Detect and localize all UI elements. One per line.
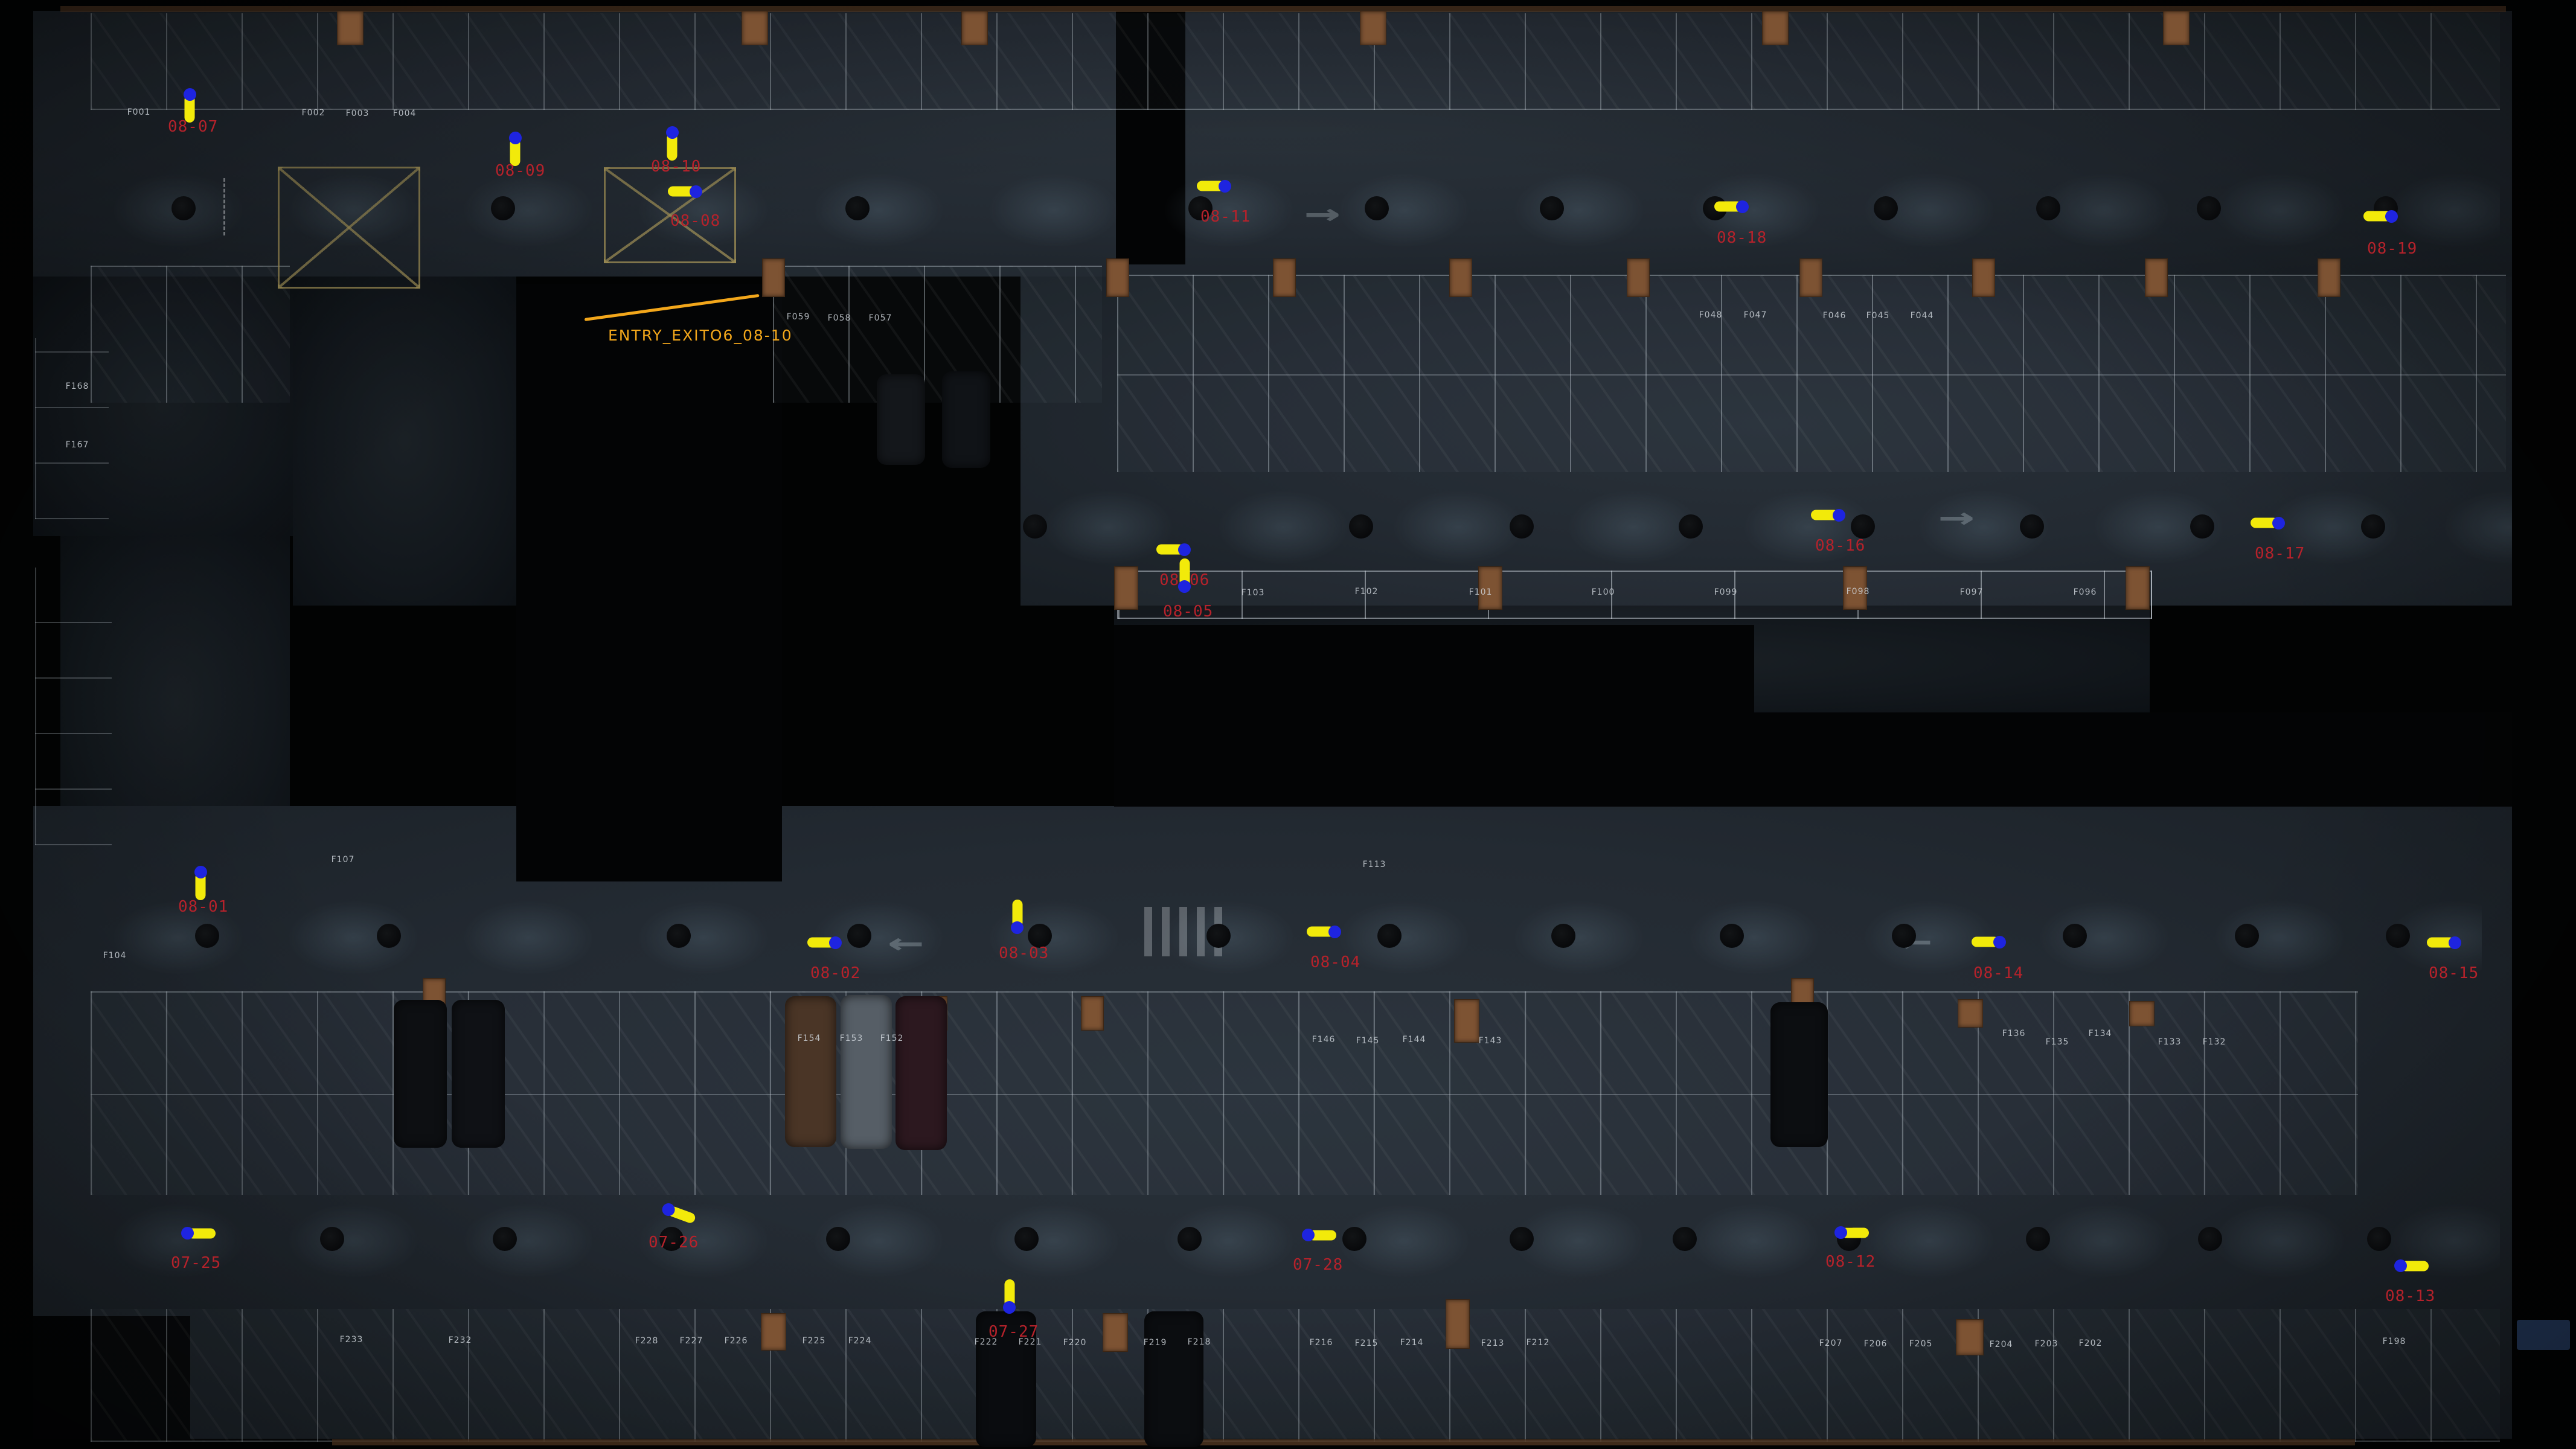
lane-bottom xyxy=(91,1188,2500,1290)
structural-column xyxy=(1510,514,1534,539)
scan-marker-heading-dot xyxy=(1993,936,2006,948)
stall-label-F134: F134 xyxy=(2089,1029,2112,1038)
parked-car xyxy=(877,374,925,465)
concrete-pillar xyxy=(1446,1299,1470,1349)
stall-label-F154: F154 xyxy=(798,1034,821,1043)
structural-column xyxy=(320,1227,344,1251)
floor-center-left xyxy=(293,277,516,606)
stall-label-F044: F044 xyxy=(1911,311,1934,321)
stall-label-F207: F207 xyxy=(1819,1339,1843,1348)
structural-column xyxy=(2235,924,2259,948)
structural-column xyxy=(667,924,691,948)
stall-label-F228: F228 xyxy=(635,1336,659,1346)
concrete-pillar xyxy=(1627,258,1650,297)
concrete-pillar xyxy=(1799,258,1822,297)
stall-row-bottom xyxy=(91,1309,2500,1442)
void-below-mid-band xyxy=(1114,712,2512,807)
concrete-pillar xyxy=(1958,999,1983,1028)
wall-strip-bottom xyxy=(332,1439,2355,1445)
stall-label-F100: F100 xyxy=(1592,587,1615,597)
scan-marker-label-08-16: 08-16 xyxy=(1815,537,1865,555)
stall-label-F004: F004 xyxy=(393,109,417,118)
structural-column xyxy=(1349,514,1373,539)
structural-column xyxy=(1206,924,1231,948)
stall-label-F204: F204 xyxy=(1990,1340,2013,1349)
scan-marker-08-08[interactable] xyxy=(668,187,696,197)
lane-arrow-icon: → xyxy=(888,921,923,962)
concrete-pillar xyxy=(2145,258,2168,297)
structural-column xyxy=(171,196,196,220)
scan-marker-label-08-09: 08-09 xyxy=(495,162,545,180)
scan-marker-label-07-27: 07-27 xyxy=(988,1323,1039,1341)
concrete-pillar xyxy=(1449,258,1472,297)
stall-label-F218: F218 xyxy=(1188,1337,1211,1347)
stall-label-F224: F224 xyxy=(848,1336,872,1346)
structural-column xyxy=(1551,924,1575,948)
scan-marker-label-08-18: 08-18 xyxy=(1717,229,1767,247)
scan-marker-label-08-17: 08-17 xyxy=(2255,545,2305,563)
wall-strip-top xyxy=(60,6,2506,12)
stall-label-F146: F146 xyxy=(1312,1035,1336,1044)
scan-marker-label-08-15: 08-15 xyxy=(2429,964,2479,982)
stall-label-F226: F226 xyxy=(725,1336,748,1346)
scan-marker-heading-dot xyxy=(1178,543,1191,556)
scan-marker-08-11[interactable] xyxy=(1197,181,1225,191)
structural-column xyxy=(491,196,515,220)
scan-marker-heading-dot xyxy=(1004,1301,1016,1314)
scan-marker-08-06[interactable] xyxy=(1156,545,1184,555)
scan-marker-08-10[interactable] xyxy=(667,133,678,161)
concrete-pillar xyxy=(1454,999,1479,1043)
scan-marker-08-12[interactable] xyxy=(1841,1228,1869,1238)
parked-car xyxy=(394,1000,447,1148)
structural-column xyxy=(845,196,870,220)
stall-label-F136: F136 xyxy=(2002,1029,2026,1038)
scan-marker-08-03[interactable] xyxy=(1013,900,1023,927)
scan-marker-heading-dot xyxy=(690,185,702,198)
scan-marker-heading-dot xyxy=(2272,517,2285,529)
scan-marker-label-08-04: 08-04 xyxy=(1310,953,1360,971)
scan-marker-08-01[interactable] xyxy=(196,872,206,900)
scan-marker-08-15[interactable] xyxy=(2427,938,2455,948)
scan-marker-heading-dot xyxy=(829,936,842,949)
stall-label-F143: F143 xyxy=(1479,1036,1502,1046)
concrete-pillar xyxy=(1106,258,1129,297)
stall-label-F198: F198 xyxy=(2383,1337,2406,1346)
structural-column xyxy=(1720,924,1744,948)
scan-marker-08-02[interactable] xyxy=(807,938,835,948)
scan-marker-heading-dot xyxy=(1328,926,1341,938)
parked-car xyxy=(785,996,836,1147)
lane-dash-line xyxy=(223,178,225,235)
lane-lower-mid xyxy=(91,883,2482,988)
stall-label-F206: F206 xyxy=(1864,1339,1888,1349)
scan-marker-08-17[interactable] xyxy=(2251,518,2278,528)
stall-label-F104: F104 xyxy=(103,951,127,961)
void-left-shaft xyxy=(516,284,782,881)
structural-column xyxy=(2190,514,2214,539)
structural-column xyxy=(1892,924,1916,948)
structural-column xyxy=(2361,514,2385,539)
scan-marker-label-08-07: 08-07 xyxy=(168,118,218,136)
taped-cross-box-1 xyxy=(278,167,420,289)
concrete-pillar xyxy=(1956,1319,1984,1355)
stall-label-F098: F098 xyxy=(1847,587,1870,597)
scan-marker-07-25[interactable] xyxy=(188,1229,216,1239)
scan-marker-label-08-01: 08-01 xyxy=(178,898,228,916)
lane-arrow-icon: → xyxy=(1938,496,1974,537)
stall-label-F103: F103 xyxy=(1242,588,1265,598)
structural-column xyxy=(1365,196,1389,220)
structural-column xyxy=(826,1227,850,1251)
scan-marker-08-16[interactable] xyxy=(1811,510,1839,520)
stall-row-left-wall xyxy=(35,338,109,519)
concrete-pillar xyxy=(2129,1001,2155,1026)
lane-top xyxy=(91,152,2500,264)
structural-column xyxy=(847,924,871,948)
stall-label-F047: F047 xyxy=(1744,310,1767,320)
concrete-pillar xyxy=(961,11,988,45)
scan-marker-label-07-28: 07-28 xyxy=(1293,1256,1343,1274)
stall-label-F220: F220 xyxy=(1063,1338,1087,1348)
scan-marker-08-04[interactable] xyxy=(1307,927,1334,937)
structural-column xyxy=(1874,196,1898,220)
scan-marker-label-08-13: 08-13 xyxy=(2385,1287,2435,1305)
stall-label-F101: F101 xyxy=(1469,587,1493,597)
structural-column xyxy=(2063,924,2087,948)
stall-label-F002: F002 xyxy=(302,108,325,118)
parked-car xyxy=(1770,1002,1828,1147)
scan-marker-heading-dot xyxy=(1302,1229,1315,1242)
concrete-pillar xyxy=(2318,258,2341,297)
scan-marker-label-08-14: 08-14 xyxy=(1973,964,2023,982)
stall-row-entry-right xyxy=(773,266,1102,403)
parked-car xyxy=(452,1000,505,1148)
scan-marker-heading-dot xyxy=(1736,200,1749,213)
scan-marker-label-08-02: 08-02 xyxy=(810,964,860,982)
scan-marker-heading-dot xyxy=(2449,936,2461,949)
structural-column xyxy=(1510,1227,1534,1251)
structural-column xyxy=(1540,196,1564,220)
scan-marker-07-28[interactable] xyxy=(1309,1230,1336,1241)
concrete-pillar xyxy=(1081,996,1104,1031)
stall-label-F099: F099 xyxy=(1714,587,1738,597)
stall-row-upper-left xyxy=(91,266,290,403)
concrete-pillar xyxy=(2126,566,2150,610)
scan-marker-heading-dot xyxy=(1011,921,1024,934)
stall-label-F096: F096 xyxy=(2074,587,2097,597)
stall-label-F003: F003 xyxy=(346,109,370,118)
stall-label-F167: F167 xyxy=(66,440,89,450)
structural-column xyxy=(1673,1227,1697,1251)
stall-label-F135: F135 xyxy=(2046,1037,2069,1047)
scan-marker-heading-dot xyxy=(666,126,679,139)
parked-car xyxy=(841,995,892,1149)
scan-marker-08-05[interactable] xyxy=(1180,558,1190,586)
scan-marker-08-14[interactable] xyxy=(1972,937,1999,947)
stall-label-F219: F219 xyxy=(1144,1338,1167,1348)
concrete-pillar xyxy=(1360,11,1386,45)
stall-label-F145: F145 xyxy=(1356,1036,1380,1046)
stall-label-F144: F144 xyxy=(1403,1035,1426,1044)
concrete-pillar xyxy=(742,11,768,45)
scan-marker-label-08-12: 08-12 xyxy=(1825,1253,1876,1271)
concrete-pillar xyxy=(1972,258,1995,297)
stall-row-upper-right xyxy=(1117,275,2506,472)
parked-car xyxy=(942,371,990,468)
scan-marker-08-13[interactable] xyxy=(2401,1261,2429,1271)
concrete-pillar xyxy=(761,1313,786,1351)
stall-label-F102: F102 xyxy=(1355,587,1379,597)
stall-label-F225: F225 xyxy=(803,1336,826,1346)
stall-label-F107: F107 xyxy=(332,855,355,865)
stall-label-F046: F046 xyxy=(1823,311,1847,321)
concrete-pillar xyxy=(1273,258,1296,297)
structural-column xyxy=(2386,924,2410,948)
concrete-pillar xyxy=(1114,566,1138,610)
scan-marker-heading-dot xyxy=(2385,210,2398,223)
stall-label-F057: F057 xyxy=(869,313,892,323)
stall-label-F045: F045 xyxy=(1866,311,1890,321)
stall-row-middle-wide xyxy=(1117,571,2152,619)
structural-column xyxy=(2026,1227,2050,1251)
stall-label-F133: F133 xyxy=(2158,1037,2182,1047)
concrete-pillar xyxy=(2163,11,2190,45)
scan-marker-heading-dot xyxy=(2394,1260,2407,1273)
stall-label-F153: F153 xyxy=(840,1034,863,1043)
scan-marker-heading-dot xyxy=(1179,580,1191,593)
scan-marker-heading-dot xyxy=(509,132,522,144)
scan-marker-08-18[interactable] xyxy=(1714,202,1742,212)
scan-marker-heading-dot xyxy=(194,866,207,878)
scan-marker-heading-dot xyxy=(184,88,196,101)
scan-marker-label-08-19: 08-19 xyxy=(2367,240,2417,258)
stall-label-F205: F205 xyxy=(1909,1339,1933,1349)
parked-car xyxy=(896,996,947,1150)
stall-label-F213: F213 xyxy=(1481,1339,1505,1348)
concrete-pillar xyxy=(337,11,364,45)
scan-marker-label-07-25: 07-25 xyxy=(171,1254,221,1272)
parked-car xyxy=(1144,1311,1203,1447)
stall-label-F214: F214 xyxy=(1400,1338,1424,1348)
scan-marker-label-08-10: 08-10 xyxy=(651,158,701,176)
entry-annotation-label: ENTRY_EXITO6_08-10 xyxy=(608,327,793,344)
structural-column xyxy=(2198,1227,2222,1251)
stall-label-F152: F152 xyxy=(880,1034,904,1043)
structural-column xyxy=(2020,514,2044,539)
structural-column xyxy=(377,924,401,948)
stall-label-F113: F113 xyxy=(1363,860,1386,869)
stall-label-F001: F001 xyxy=(127,107,151,117)
stall-label-F203: F203 xyxy=(2035,1339,2059,1349)
stall-label-F233: F233 xyxy=(340,1335,364,1345)
parking-garage-floorplan: → → → → ENTRY_EXITO6_08-10 F001F002F003F… xyxy=(0,0,2576,1449)
shelf-object xyxy=(2517,1320,2570,1350)
structural-column xyxy=(1342,1227,1366,1251)
structural-column xyxy=(1014,1227,1039,1251)
stall-label-F132: F132 xyxy=(2203,1037,2226,1047)
stall-label-F058: F058 xyxy=(828,313,851,323)
structural-column xyxy=(1851,514,1875,539)
structural-column xyxy=(1023,514,1047,539)
scan-marker-heading-dot xyxy=(1219,180,1231,193)
stall-row-left-wall-2 xyxy=(35,568,112,845)
stall-label-F216: F216 xyxy=(1310,1338,1333,1348)
stall-label-F227: F227 xyxy=(680,1336,703,1346)
structural-column xyxy=(2036,196,2060,220)
scan-marker-label-08-11: 08-11 xyxy=(1200,208,1251,226)
concrete-pillar xyxy=(1762,11,1789,45)
scan-marker-label-08-08: 08-08 xyxy=(670,212,720,230)
scan-marker-heading-dot xyxy=(1834,1227,1847,1239)
structural-column xyxy=(493,1227,517,1251)
structural-column xyxy=(2367,1227,2391,1251)
lane-arrow-icon: → xyxy=(1304,192,1340,233)
stall-label-F202: F202 xyxy=(2079,1339,2103,1348)
stall-label-F212: F212 xyxy=(1527,1338,1550,1348)
scan-marker-08-19[interactable] xyxy=(2363,211,2391,222)
scan-marker-07-27[interactable] xyxy=(1005,1279,1015,1307)
structural-column xyxy=(1177,1227,1202,1251)
structural-column xyxy=(195,924,219,948)
stall-label-F048: F048 xyxy=(1699,310,1723,320)
structural-column xyxy=(1377,924,1402,948)
stall-label-F097: F097 xyxy=(1960,587,1984,597)
stall-label-F232: F232 xyxy=(449,1335,472,1345)
stall-row-top xyxy=(91,13,2500,110)
stall-label-F215: F215 xyxy=(1355,1339,1379,1348)
scan-marker-heading-dot xyxy=(181,1227,194,1240)
scan-marker-label-08-03: 08-03 xyxy=(999,944,1049,962)
concrete-pillar xyxy=(762,258,785,297)
stall-label-F168: F168 xyxy=(66,382,89,391)
stall-label-F059: F059 xyxy=(787,312,810,322)
structural-column xyxy=(2197,196,2221,220)
structural-column xyxy=(1679,514,1703,539)
scan-marker-heading-dot xyxy=(1833,509,1845,522)
scan-marker-label-07-26: 07-26 xyxy=(649,1233,699,1252)
concrete-pillar xyxy=(1103,1313,1128,1352)
scan-marker-label-08-05: 08-05 xyxy=(1163,603,1213,621)
